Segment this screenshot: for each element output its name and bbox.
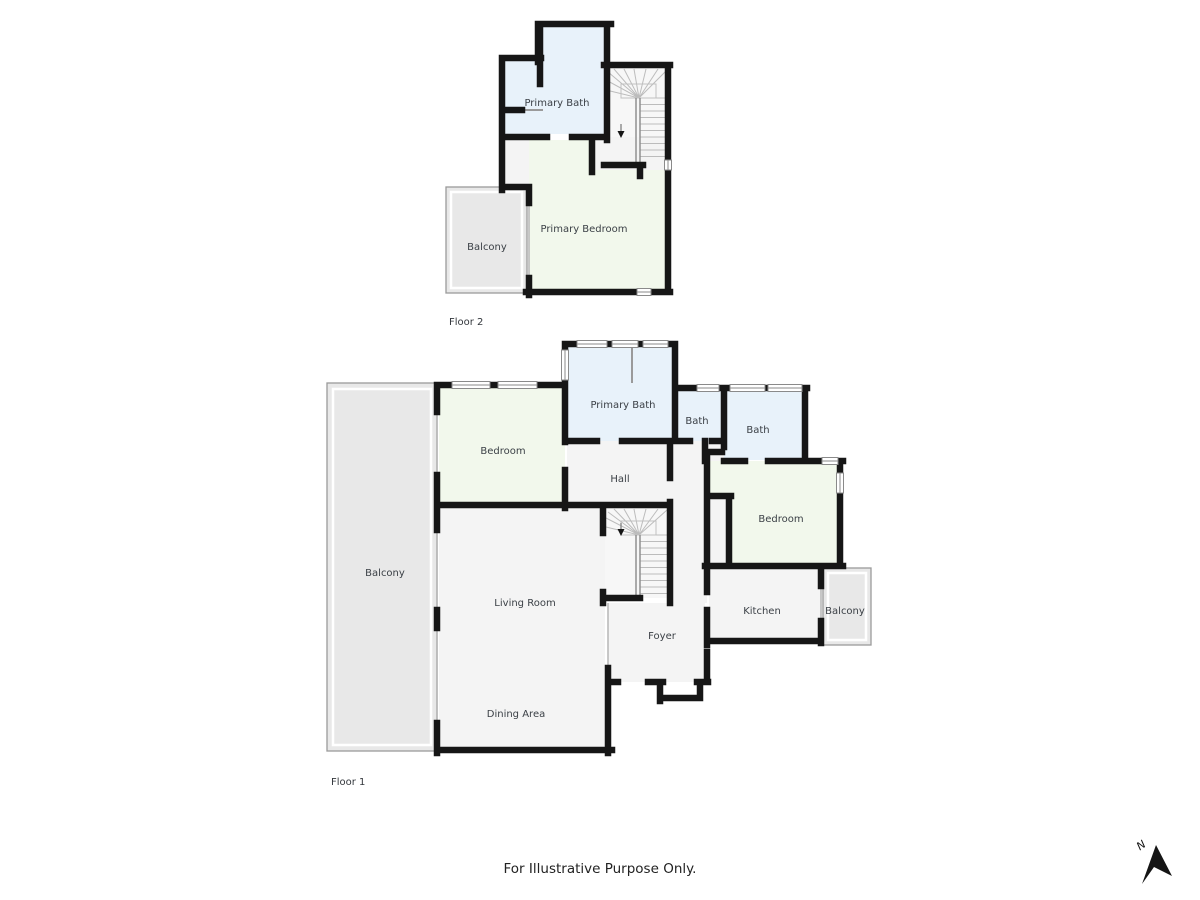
window [612,341,638,348]
window [577,341,607,348]
window [637,289,651,296]
disclaimer-text: For Illustrative Purpose Only. [504,861,697,877]
room-floor1-primary-bath [567,346,673,441]
floor1-corridor-column [670,461,707,603]
room-label-bedroom-right: Bedroom [758,514,803,525]
window [730,385,765,392]
window [562,350,569,380]
north-label: N [1134,838,1148,853]
north-arrow-icon [1142,845,1172,884]
window [837,473,844,493]
window [452,382,490,389]
floorplan-svg: Primary Bath Primary Bedroom Balcony Flo… [0,0,1200,900]
floor1-label: Floor 1 [331,777,365,788]
floor1-balcony-left [327,383,437,751]
window [768,385,802,392]
room-label-bedroom-left: Bedroom [480,446,525,457]
room-label-primary-bath-f2: Primary Bath [524,98,589,109]
floor2-plan: Primary Bath Primary Bedroom Balcony Flo… [446,24,672,328]
window [822,458,838,465]
room-label-foyer: Foyer [648,631,677,642]
window [665,160,672,170]
north-indicator: N [1134,838,1172,884]
room-label-bath-1: Bath [685,416,708,427]
room-label-living-room: Living Room [494,598,555,609]
floor1-plan: Primary Bath Bath Bath Hall Bedroom Bedr… [327,341,871,789]
room-label-balcony-left: Balcony [365,568,405,579]
window [498,382,537,389]
room-label-balcony-f2: Balcony [467,242,507,253]
room-label-hall: Hall [610,474,629,485]
room-label-bath-2: Bath [746,425,769,436]
floor2-label: Floor 2 [449,317,483,328]
room-floor1-kitchen [709,566,821,641]
room-label-kitchen: Kitchen [743,606,781,617]
room-floor1-hall [567,441,673,505]
window [643,341,668,348]
floor2-hall-strip [504,134,529,190]
floorplan-page: Primary Bath Primary Bedroom Balcony Flo… [0,0,1200,900]
room-floor2-primary-bath [504,27,608,134]
room-label-dining-area: Dining Area [487,709,545,720]
floor2-balcony [446,187,527,293]
room-label-primary-bedroom-f2: Primary Bedroom [540,224,627,235]
room-floor1-foyer [608,603,705,682]
window [697,385,719,392]
room-label-balcony-right: Balcony [825,606,865,617]
room-label-primary-bath-f1: Primary Bath [590,400,655,411]
